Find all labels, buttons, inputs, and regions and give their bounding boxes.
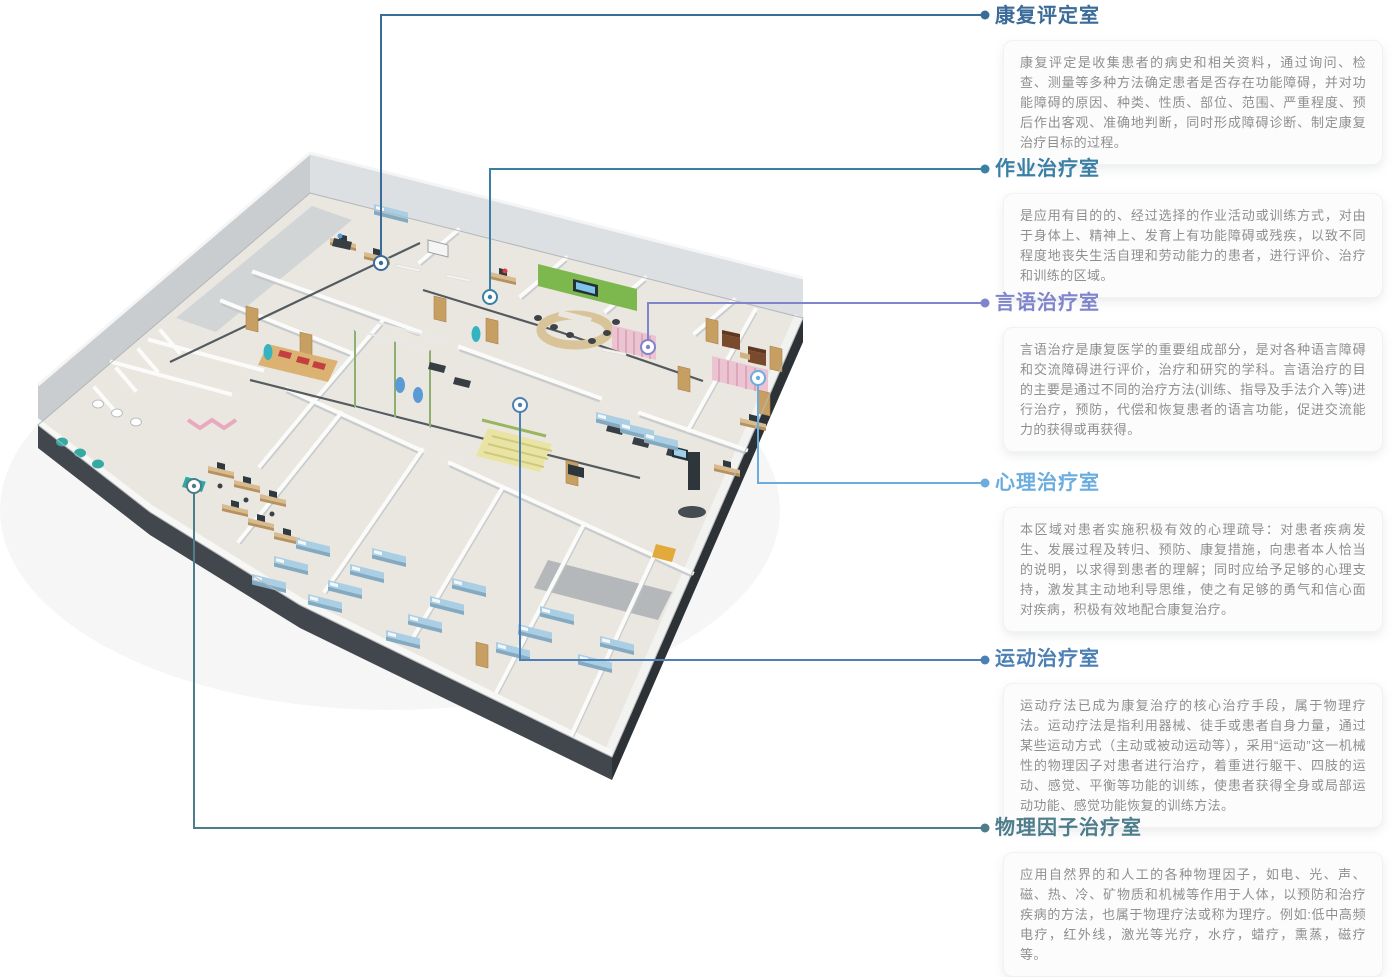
callout-psychology (751, 371, 990, 488)
callout-bullet (981, 656, 990, 665)
callout-occupational (483, 165, 990, 305)
room-marker-dot (192, 484, 196, 488)
callout-line (490, 169, 985, 297)
room-description-card: 康复评定是收集患者的病史和相关资料，通过询问、检查、测量等多种方法确定患者是否存… (1003, 40, 1383, 165)
callout-line (520, 405, 985, 660)
infographic-page: { "sections": [ { "title": "康复评定室", "col… (0, 0, 1400, 961)
callout-exercise (513, 398, 990, 665)
room-description: 是应用有目的的、经过选择的作业活动或训练方式，对由于身体上、精神上、发育上有功能… (1020, 206, 1366, 286)
room-marker-dot (646, 345, 650, 349)
callout-bullet (981, 479, 990, 488)
callout-line (381, 15, 985, 263)
callout-speech (641, 299, 990, 355)
room-description-card: 言语治疗是康复医学的重要组成部分，是对各种语言障碍和交流障碍进行评价，治疗和研究… (1003, 327, 1383, 452)
room-marker-dot (756, 376, 760, 380)
room-description: 言语治疗是康复医学的重要组成部分，是对各种语言障碍和交流障碍进行评价，治疗和研究… (1020, 340, 1366, 440)
legend-section-psychology: 心理治疗室 本区域对患者实施积极有效的心理疏导：对患者疾病发生、发展过程及转归、… (995, 472, 1387, 632)
room-title: 言语治疗室 (995, 292, 1387, 315)
room-title: 作业治疗室 (995, 158, 1387, 181)
legend-section-occupational: 作业治疗室 是应用有目的的、经过选择的作业活动或训练方式，对由于身体上、精神上、… (995, 158, 1387, 298)
callout-bullet (981, 299, 990, 308)
callout-physical-factor (187, 479, 990, 833)
callout-bullet (981, 824, 990, 833)
room-description: 本区域对患者实施积极有效的心理疏导：对患者疾病发生、发展过程及转归、预防、康复措… (1020, 520, 1366, 620)
room-description-card: 是应用有目的的、经过选择的作业活动或训练方式，对由于身体上、精神上、发育上有功能… (1003, 193, 1383, 298)
room-description-card: 本区域对患者实施积极有效的心理疏导：对患者疾病发生、发展过程及转归、预防、康复措… (1003, 507, 1383, 632)
callout-bullet (981, 165, 990, 174)
room-description-card: 应用自然界的和人工的各种物理因子，如电、光、声、磁、热、冷、矿物质和机械等作用于… (1003, 852, 1383, 977)
room-description: 康复评定是收集患者的病史和相关资料，通过询问、检查、测量等多种方法确定患者是否存… (1020, 53, 1366, 153)
callout-assessment (374, 11, 990, 271)
legend-section-assessment: 康复评定室 康复评定是收集患者的病史和相关资料，通过询问、检查、测量等多种方法确… (995, 5, 1387, 165)
room-marker-dot (379, 261, 383, 265)
callout-bullet (981, 11, 990, 20)
legend-section-physical-factor: 物理因子治疗室 应用自然界的和人工的各种物理因子，如电、光、声、磁、热、冷、矿物… (995, 817, 1387, 977)
legend-section-exercise: 运动治疗室 运动疗法已成为康复治疗的核心治疗手段，属于物理疗法。运动疗法是指利用… (995, 648, 1387, 828)
room-description: 应用自然界的和人工的各种物理因子，如电、光、声、磁、热、冷、矿物质和机械等作用于… (1020, 865, 1366, 965)
room-description-card: 运动疗法已成为康复治疗的核心治疗手段，属于物理疗法。运动疗法是指利用器械、徒手或… (1003, 683, 1383, 828)
callout-line (194, 486, 985, 828)
room-marker-dot (518, 403, 522, 407)
legend-section-speech: 言语治疗室 言语治疗是康复医学的重要组成部分，是对各种语言障碍和交流障碍进行评价… (995, 292, 1387, 452)
room-title: 运动治疗室 (995, 648, 1387, 671)
callout-line (648, 303, 985, 347)
room-marker-dot (488, 295, 492, 299)
room-title: 康复评定室 (995, 5, 1387, 28)
callout-line (758, 378, 985, 483)
room-description: 运动疗法已成为康复治疗的核心治疗手段，属于物理疗法。运动疗法是指利用器械、徒手或… (1020, 696, 1366, 816)
room-title: 物理因子治疗室 (995, 817, 1387, 840)
room-title: 心理治疗室 (995, 472, 1387, 495)
